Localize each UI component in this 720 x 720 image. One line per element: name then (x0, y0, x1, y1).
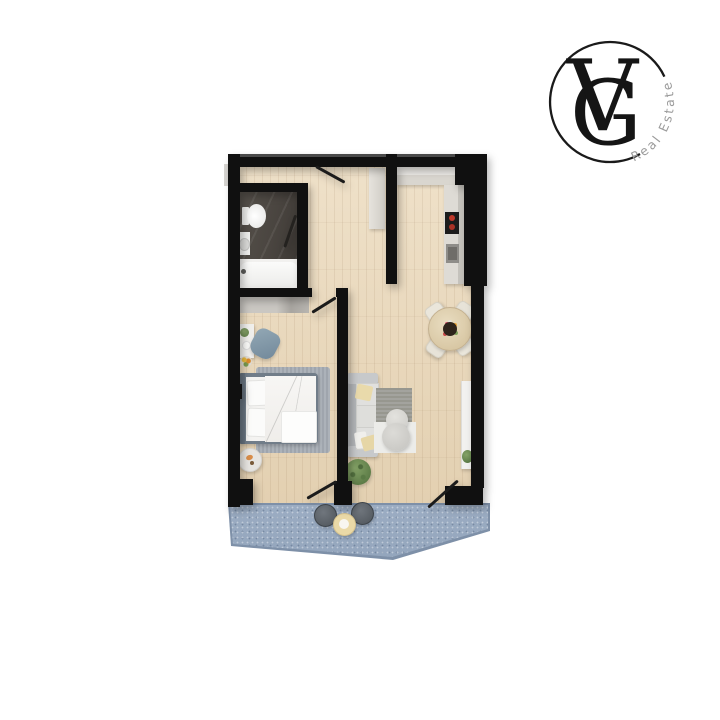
entrance-door-leaf (315, 165, 345, 183)
wall-right (471, 286, 484, 488)
bathroom-door-leaf (284, 215, 297, 248)
wall-bathroom-top (228, 183, 308, 192)
wall-left-pier (228, 384, 242, 399)
wall-bottom-left-block (228, 479, 253, 505)
wall-top (228, 154, 487, 167)
bedroom-door-leaf (311, 296, 336, 313)
wall-right-thick (464, 167, 487, 286)
wall-bathroom-right (297, 183, 308, 290)
wall-bottom-right-block (445, 486, 483, 505)
bedroom-balcony-door-leaf (306, 480, 337, 499)
floorplan-canvas: G V Real Estate (0, 0, 720, 720)
wall-bedroom-living (337, 288, 348, 487)
wall-hall-kitchen-divider (386, 154, 397, 284)
wall-left (228, 154, 240, 507)
walls-layer (0, 0, 720, 720)
wall-bedroom-top (228, 288, 312, 297)
